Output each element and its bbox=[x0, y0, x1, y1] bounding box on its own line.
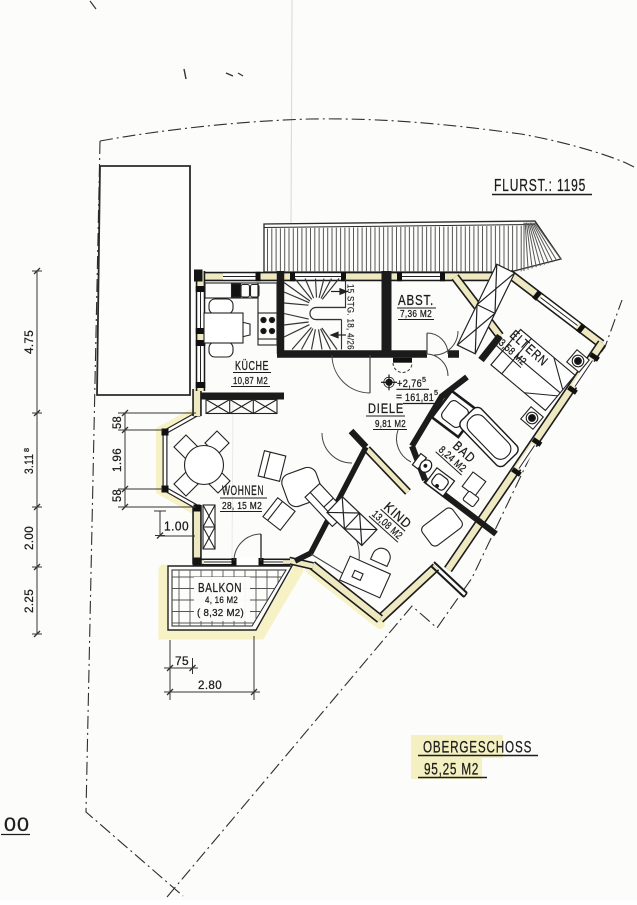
svg-text:DIELE: DIELE bbox=[368, 401, 404, 417]
svg-text:BALKON: BALKON bbox=[198, 581, 242, 596]
svg-text:2.80: 2.80 bbox=[198, 679, 222, 692]
svg-text:4, 16 M2: 4, 16 M2 bbox=[205, 594, 238, 605]
svg-text:15 STG. 18, 4/26: 15 STG. 18, 4/26 bbox=[345, 284, 355, 350]
svg-text:8: 8 bbox=[22, 448, 31, 452]
svg-text:28, 15 M2: 28, 15 M2 bbox=[222, 500, 262, 512]
svg-text:10,87 M2: 10,87 M2 bbox=[233, 375, 268, 386]
svg-text:58: 58 bbox=[112, 416, 124, 429]
svg-text:75: 75 bbox=[175, 654, 189, 668]
svg-text:FLURST.: 1195: FLURST.: 1195 bbox=[494, 176, 586, 196]
svg-text:WOHNEN: WOHNEN bbox=[222, 484, 264, 499]
svg-text:2.00: 2.00 bbox=[23, 526, 36, 550]
svg-text:58: 58 bbox=[112, 489, 124, 502]
svg-text:OBERGESCHOSS: OBERGESCHOSS bbox=[423, 739, 532, 758]
svg-text:ABST.: ABST. bbox=[398, 292, 434, 309]
svg-text:( 8,32 M2): ( 8,32 M2) bbox=[197, 608, 244, 619]
svg-text:4.75: 4.75 bbox=[23, 330, 36, 354]
svg-text:95,25 M2: 95,25 M2 bbox=[424, 761, 479, 779]
svg-text:2.25: 2.25 bbox=[23, 589, 36, 613]
svg-text:3.11: 3.11 bbox=[23, 454, 36, 474]
svg-text:KÜCHE: KÜCHE bbox=[235, 359, 269, 373]
svg-text:00: 00 bbox=[4, 814, 30, 836]
svg-text:9,81 M2: 9,81 M2 bbox=[375, 418, 406, 429]
svg-text:1.96: 1.96 bbox=[111, 448, 124, 472]
svg-text:+2,76: +2,76 bbox=[397, 378, 422, 390]
svg-text:1.00: 1.00 bbox=[164, 519, 189, 533]
svg-text:7,36 M2: 7,36 M2 bbox=[400, 308, 432, 320]
svg-text:161,81: 161,81 bbox=[405, 392, 434, 404]
svg-text:5: 5 bbox=[434, 388, 438, 397]
svg-text:5: 5 bbox=[422, 375, 426, 384]
